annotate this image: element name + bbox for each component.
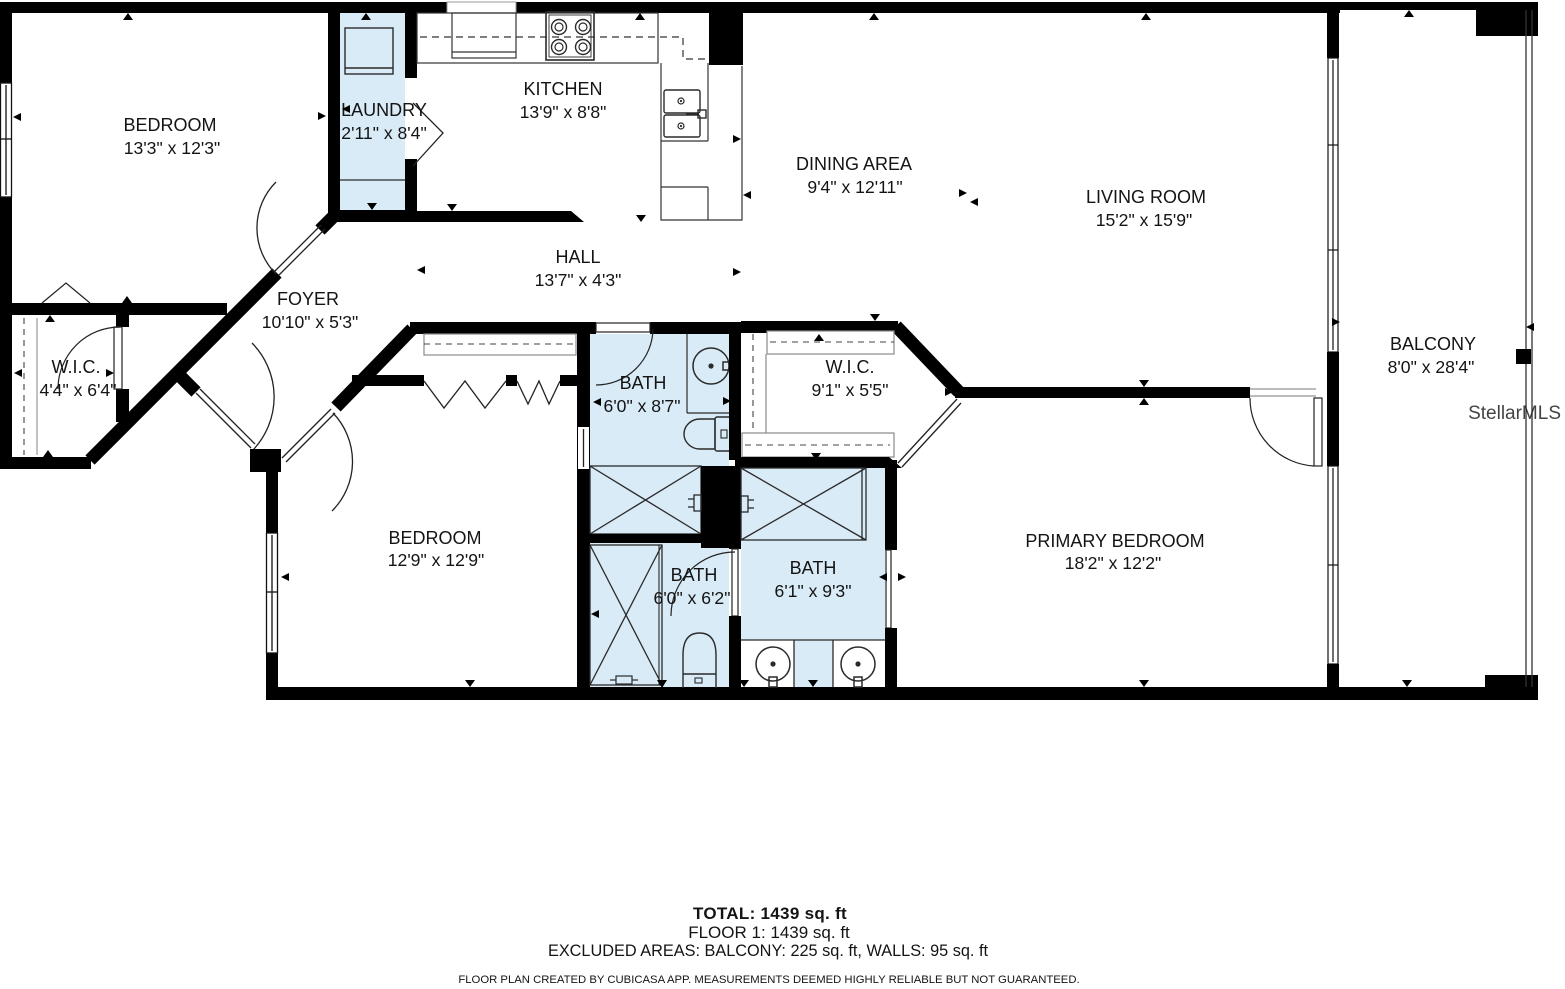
svg-text:BATH: BATH — [620, 373, 667, 393]
svg-text:6'0" x 8'7": 6'0" x 8'7" — [604, 396, 681, 416]
svg-text:6'1" x 9'3": 6'1" x 9'3" — [775, 581, 852, 601]
svg-text:FOYER: FOYER — [277, 289, 339, 309]
svg-text:9'4" x 12'11": 9'4" x 12'11" — [807, 177, 902, 197]
svg-text:6'0" x 6'2": 6'0" x 6'2" — [654, 588, 731, 608]
svg-text:BALCONY: BALCONY — [1390, 334, 1476, 354]
svg-text:8'0" x 28'4": 8'0" x 28'4" — [1388, 357, 1475, 377]
svg-text:BATH: BATH — [790, 558, 837, 578]
svg-text:BATH: BATH — [671, 565, 718, 585]
svg-text:HALL: HALL — [555, 247, 600, 267]
svg-text:PRIMARY BEDROOM: PRIMARY BEDROOM — [1025, 531, 1204, 551]
svg-text:13'9" x 8'8": 13'9" x 8'8" — [520, 102, 607, 122]
svg-text:4'4" x 6'4": 4'4" x 6'4" — [40, 380, 117, 400]
svg-text:TOTAL: 1439 sq. ft: TOTAL: 1439 sq. ft — [693, 904, 847, 923]
svg-text:KITCHEN: KITCHEN — [523, 79, 602, 99]
svg-text:W.I.C.: W.I.C. — [826, 357, 875, 377]
svg-text:W.I.C.: W.I.C. — [52, 357, 101, 377]
svg-text:BEDROOM: BEDROOM — [388, 528, 481, 548]
svg-text:18'2" x 12'2": 18'2" x 12'2" — [1065, 553, 1162, 573]
svg-text:StellarMLS: StellarMLS — [1468, 403, 1561, 424]
svg-text:LAUNDRY: LAUNDRY — [341, 100, 427, 120]
svg-text:12'9" x 12'9": 12'9" x 12'9" — [388, 550, 485, 570]
svg-text:13'3" x 12'3": 13'3" x 12'3" — [124, 138, 221, 158]
svg-text:13'7" x 4'3": 13'7" x 4'3" — [535, 270, 622, 290]
svg-text:15'2" x 15'9": 15'2" x 15'9" — [1096, 210, 1193, 230]
svg-text:10'10" x 5'3": 10'10" x 5'3" — [262, 312, 359, 332]
svg-text:LIVING ROOM: LIVING ROOM — [1086, 187, 1206, 207]
svg-text:9'1" x 5'5": 9'1" x 5'5" — [812, 380, 889, 400]
svg-text:DINING AREA: DINING AREA — [796, 154, 912, 174]
svg-text:2'11" x 8'4": 2'11" x 8'4" — [341, 123, 426, 143]
svg-text:EXCLUDED AREAS: BALCONY: 225 s: EXCLUDED AREAS: BALCONY: 225 sq. ft, WAL… — [548, 942, 989, 960]
svg-text:FLOOR PLAN CREATED BY CUBICASA: FLOOR PLAN CREATED BY CUBICASA APP. MEAS… — [458, 974, 1079, 986]
svg-text:BEDROOM: BEDROOM — [123, 115, 216, 135]
svg-text:FLOOR 1: 1439 sq. ft: FLOOR 1: 1439 sq. ft — [688, 923, 850, 942]
